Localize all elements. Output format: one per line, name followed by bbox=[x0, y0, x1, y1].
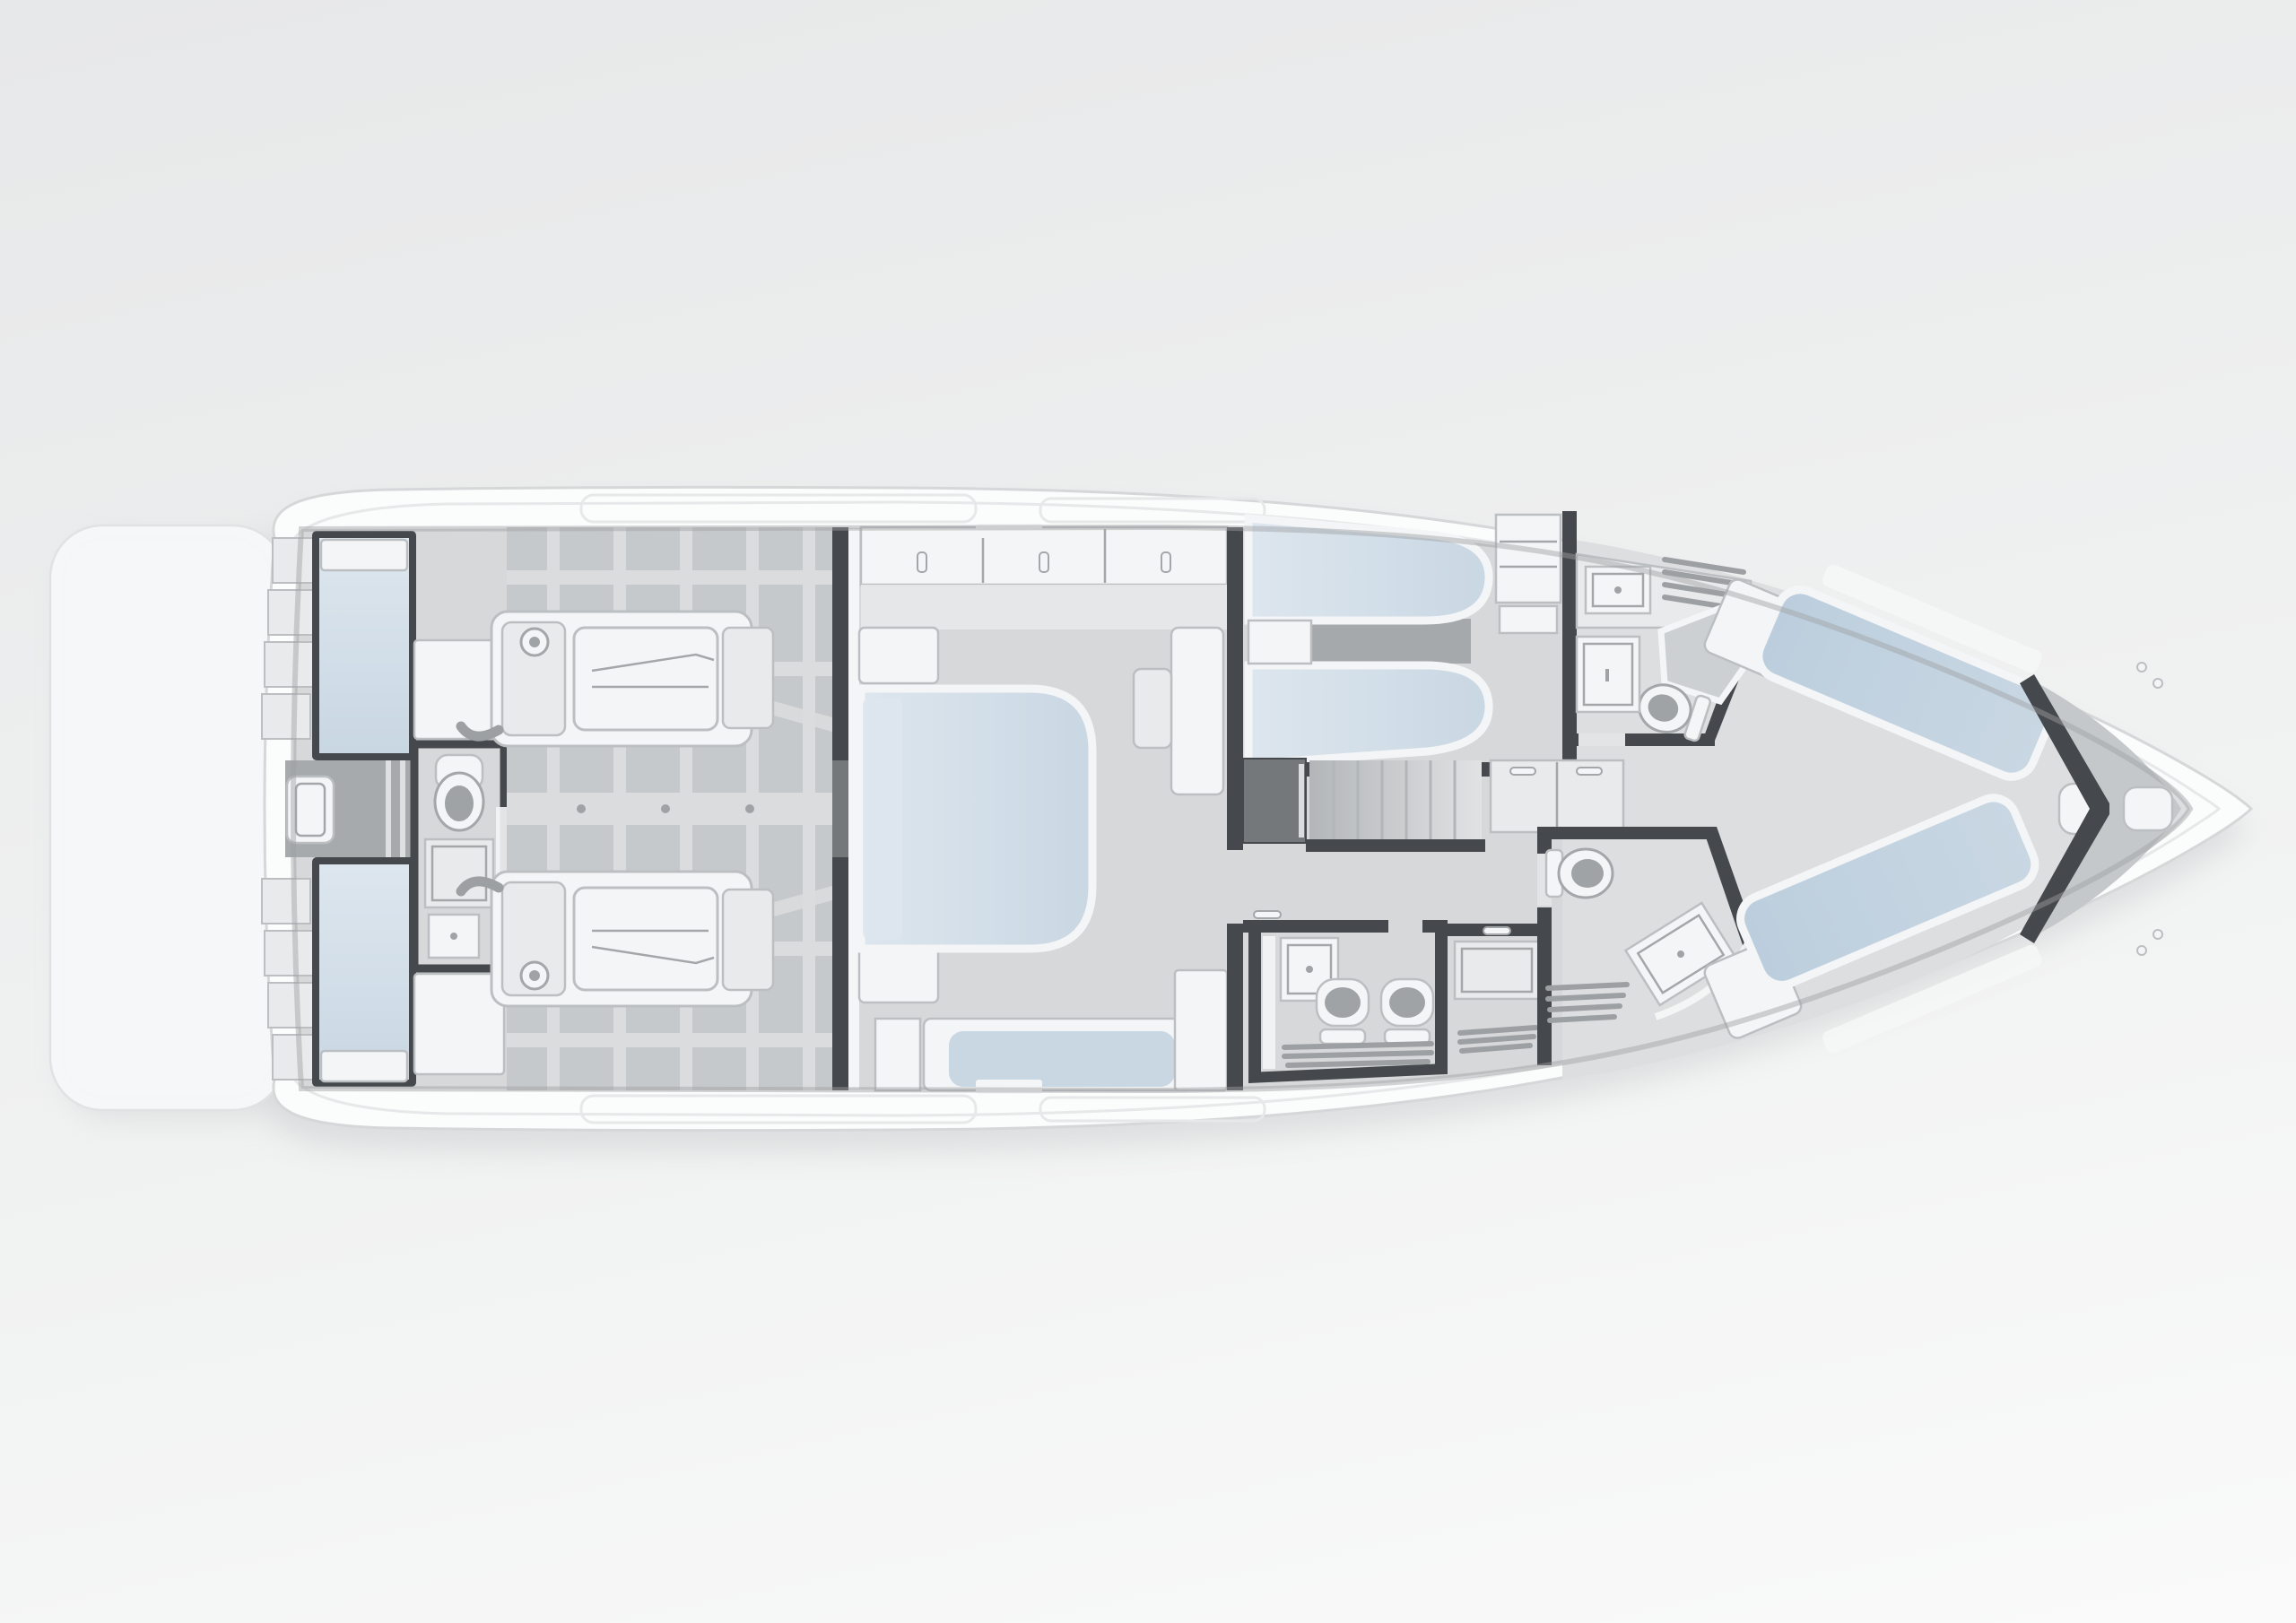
transom-step bbox=[265, 931, 313, 976]
swim-platform bbox=[50, 525, 294, 1119]
cleat-dot bbox=[2137, 946, 2146, 955]
understair-door-slit bbox=[1299, 764, 1304, 838]
sink-drain bbox=[450, 933, 457, 940]
locker-glass bbox=[319, 864, 409, 1080]
bathroom-door-gap bbox=[1578, 733, 1625, 746]
utility-handle bbox=[1483, 927, 1510, 934]
utility-panel bbox=[1455, 942, 1539, 999]
slat bbox=[1288, 1062, 1428, 1065]
sofa-cushion bbox=[949, 1031, 1175, 1087]
master-bed-pillow-band bbox=[863, 698, 902, 940]
vanity-cabinet bbox=[1175, 970, 1227, 1090]
toilet bbox=[1317, 979, 1369, 1044]
swim-platform-deck bbox=[50, 525, 285, 1110]
toilet-bowl-inner bbox=[445, 785, 474, 821]
master-forward-wall bbox=[1227, 527, 1243, 850]
bathroom-top-wall bbox=[1537, 827, 1713, 839]
engine-turbo-hub bbox=[529, 970, 540, 981]
bulkhead-door bbox=[832, 760, 848, 857]
transom-step bbox=[268, 983, 317, 1028]
guest-wardrobe bbox=[1496, 515, 1561, 633]
stringer bbox=[507, 1033, 832, 1047]
wardrobe-cubby bbox=[1500, 606, 1557, 633]
bathroom-door-leaf bbox=[1263, 936, 1275, 1069]
bathroom-aft-wall bbox=[1562, 538, 1577, 746]
sink-drain bbox=[1614, 586, 1622, 594]
locker-cap bbox=[321, 540, 407, 570]
keel-bolt bbox=[745, 804, 754, 813]
closet-handle bbox=[1577, 768, 1602, 775]
toilet-bowl-inner bbox=[1571, 859, 1604, 888]
passage-step-line bbox=[386, 760, 391, 857]
guest-bed-lower bbox=[1248, 665, 1489, 764]
master-wardrobe bbox=[861, 527, 1227, 629]
slat bbox=[1548, 985, 1627, 988]
valve-cover bbox=[574, 628, 717, 730]
aft-passage bbox=[285, 760, 416, 857]
gearbox bbox=[723, 628, 773, 728]
corridor-handle bbox=[1254, 911, 1281, 918]
vanity-desk bbox=[1171, 628, 1223, 794]
day-head-door-gap bbox=[496, 807, 507, 877]
corridor-closet bbox=[1491, 760, 1623, 832]
cleat-dot bbox=[2137, 663, 2146, 672]
stair-lower-wall bbox=[1306, 839, 1485, 852]
vanity-seat bbox=[1134, 669, 1171, 748]
gearbox bbox=[723, 890, 773, 990]
slat bbox=[1550, 1006, 1620, 1010]
locker-cap bbox=[321, 1051, 407, 1081]
main-bulkhead bbox=[832, 527, 848, 1090]
toilet-pad bbox=[1320, 1029, 1365, 1044]
bathroom-right-wall bbox=[1435, 920, 1448, 1074]
bow-locker-hatch bbox=[2124, 787, 2172, 830]
shower-tray bbox=[425, 839, 493, 907]
bathroom-left-wall bbox=[1248, 920, 1261, 1078]
transom-step bbox=[268, 590, 317, 635]
closet-handle bbox=[1510, 768, 1535, 775]
yacht-floor-plan bbox=[0, 0, 2296, 1623]
valve-cover bbox=[574, 888, 717, 990]
understair-locker bbox=[1243, 759, 1306, 843]
toilet-bowl-inner bbox=[1389, 987, 1425, 1018]
master-forward-wall bbox=[1227, 924, 1243, 1090]
wardrobe-handle bbox=[1161, 552, 1170, 572]
nightstand bbox=[859, 628, 938, 683]
slat bbox=[1284, 1053, 1431, 1056]
stringer bbox=[507, 570, 832, 585]
transom-step bbox=[262, 694, 310, 739]
nightstand bbox=[859, 947, 938, 1002]
toilet bbox=[1381, 979, 1433, 1044]
cleat-dot bbox=[2153, 930, 2162, 939]
slat bbox=[1548, 995, 1623, 999]
transom-step bbox=[265, 642, 313, 687]
slat bbox=[1284, 1044, 1431, 1047]
keel-bolt bbox=[661, 804, 670, 813]
engine-room bbox=[461, 527, 832, 1090]
engine-turbo-hub bbox=[529, 637, 540, 647]
guest-floor-dark bbox=[1311, 619, 1471, 664]
sofa-cabinet bbox=[875, 1019, 920, 1090]
sink-drain bbox=[1306, 966, 1313, 973]
wardrobe-handle bbox=[1039, 552, 1048, 572]
guest-nightstand bbox=[1248, 621, 1311, 664]
corridor-aft-wall bbox=[1243, 920, 1388, 933]
stairs bbox=[1306, 760, 1485, 852]
wardrobe-handle bbox=[918, 552, 926, 572]
cleat-dot bbox=[2153, 679, 2162, 688]
keel-bolt bbox=[577, 804, 586, 813]
slat bbox=[1550, 1017, 1614, 1020]
passage-step-line bbox=[400, 760, 405, 857]
toilet-bowl-inner bbox=[1325, 987, 1361, 1018]
transom-step bbox=[262, 879, 310, 924]
wardrobe-counter bbox=[861, 585, 1227, 629]
wardrobe-body bbox=[1496, 515, 1561, 603]
toilet bbox=[1546, 849, 1613, 898]
